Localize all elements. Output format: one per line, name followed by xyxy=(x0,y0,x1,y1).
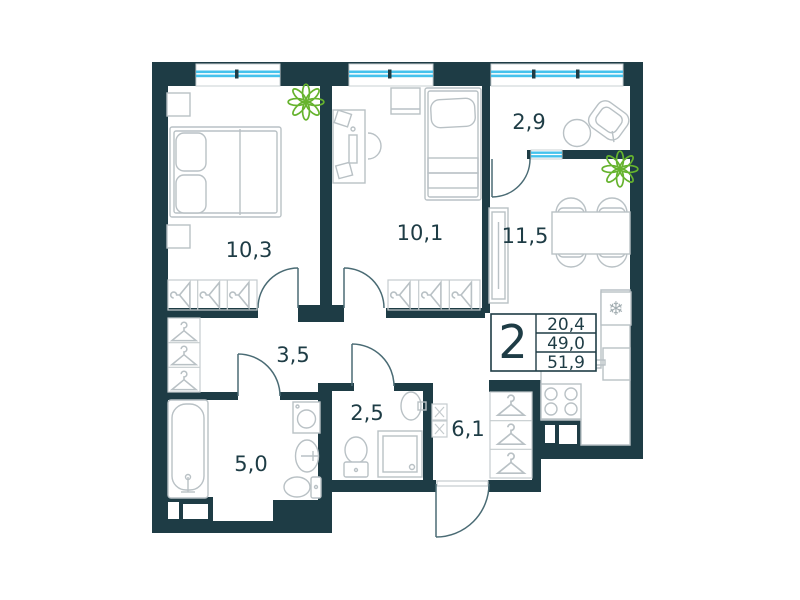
entrance-door xyxy=(436,481,489,537)
fridge: ❄ xyxy=(601,292,631,325)
room-label-hallway: 6,1 xyxy=(451,417,484,441)
stove xyxy=(541,384,581,419)
room-label-bedroom-mid: 10,1 xyxy=(397,221,444,245)
room-label-corridor: 3,5 xyxy=(276,343,309,367)
room-label-kitchen-living: 11,5 xyxy=(502,224,549,248)
door-wc xyxy=(352,344,394,386)
window-balcony-divider xyxy=(531,150,562,159)
dining-table xyxy=(552,212,630,254)
wardrobe-bedroom-left xyxy=(168,280,257,310)
wardrobe-hallway xyxy=(490,392,532,478)
floor-plan: ❄ xyxy=(0,0,800,600)
wc-sink xyxy=(401,392,426,420)
window-bedroom-left xyxy=(196,64,280,86)
door-balcony xyxy=(492,159,530,197)
total-area-value: 51,9 xyxy=(547,353,585,373)
side-table xyxy=(564,120,591,147)
room-label-bathroom: 5,0 xyxy=(234,452,267,476)
room-label-bedroom-left: 10,3 xyxy=(226,238,273,262)
wardrobe-bedroom-mid xyxy=(388,280,480,310)
wardrobe-corridor xyxy=(168,318,200,392)
rooms-count: 2 xyxy=(498,315,527,369)
room-label-balcony: 2,9 xyxy=(512,110,545,134)
snowflake-icon: ❄ xyxy=(608,298,624,320)
desk-chair xyxy=(368,133,381,159)
living-area-value: 20,4 xyxy=(547,315,585,335)
door-bedroom-left xyxy=(258,268,298,308)
door-bedroom-mid xyxy=(344,268,384,308)
door-bathroom xyxy=(238,354,280,396)
window-balcony xyxy=(491,64,623,86)
vent-grille-icon xyxy=(432,404,447,437)
dining-set xyxy=(552,198,630,267)
single-bed xyxy=(425,88,481,200)
window-bedroom-mid xyxy=(349,64,433,86)
plant-icon xyxy=(288,84,324,120)
tall-cabinet xyxy=(489,208,508,303)
apartment-area-value: 49,0 xyxy=(547,334,585,354)
double-bed xyxy=(170,127,281,217)
bathtub xyxy=(168,400,208,498)
toilet xyxy=(284,477,321,498)
shower xyxy=(378,431,422,477)
spec-table: 2 20,4 49,0 51,9 xyxy=(491,314,596,373)
washing-machine xyxy=(293,402,320,433)
wc-toilet xyxy=(344,437,368,477)
threshold xyxy=(437,481,488,486)
desk xyxy=(333,110,365,183)
cabinet xyxy=(391,88,420,114)
armchair xyxy=(585,97,632,143)
room-label-wc: 2,5 xyxy=(350,401,383,425)
bathroom-sink xyxy=(296,440,320,472)
